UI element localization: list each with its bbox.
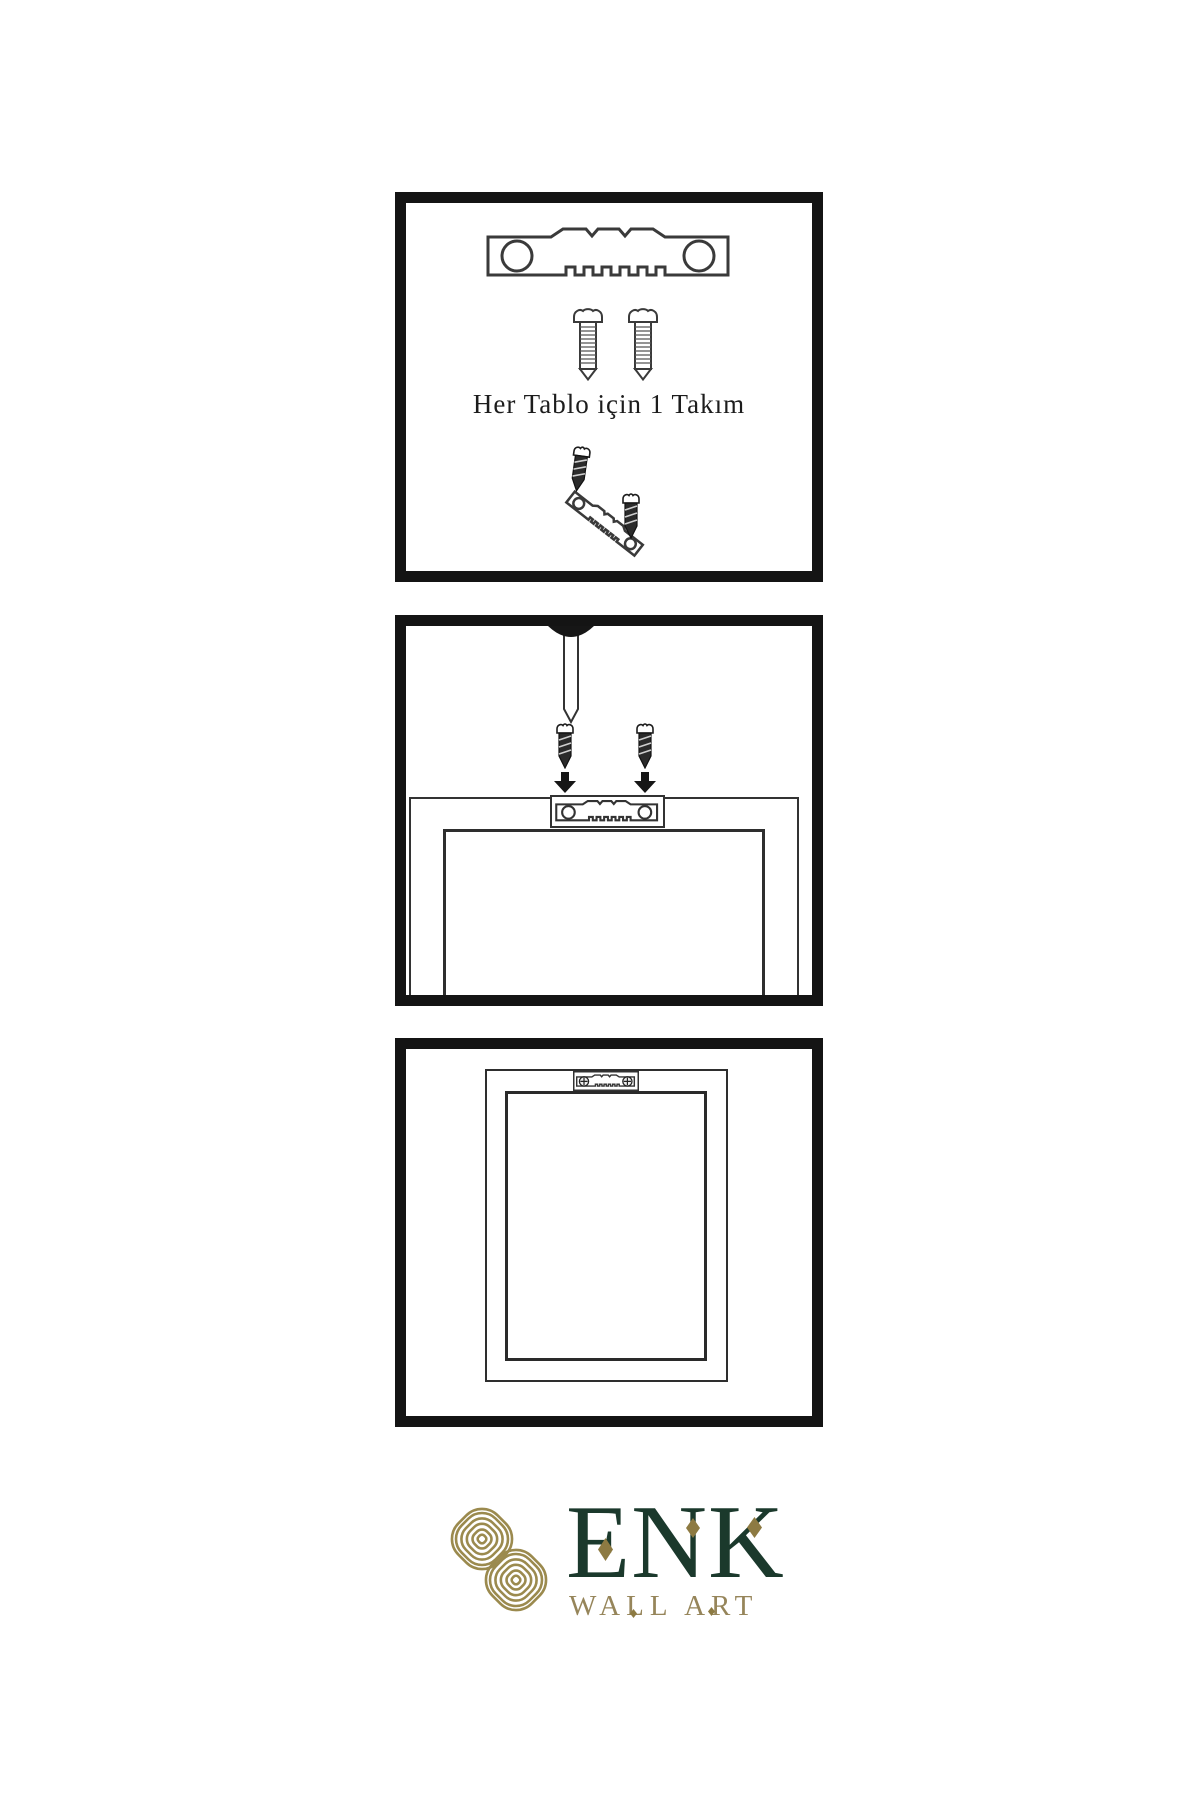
installed-hanger-icon: [573, 1071, 639, 1091]
dark-screw-icon: [554, 723, 576, 769]
brand-logo: ENK WALL ART: [420, 1485, 820, 1645]
knot-logo-icon: [437, 1492, 562, 1627]
frame-back-inner: [505, 1091, 707, 1361]
frame-back-inner: [443, 829, 765, 999]
brand-name: ENK: [566, 1495, 785, 1590]
panel-hardware-kit: Her Tablo için 1 Takım: [395, 192, 823, 582]
down-arrow-icon: [554, 772, 576, 794]
down-arrow-icon: [634, 772, 656, 794]
kit-caption: Her Tablo için 1 Takım: [406, 389, 812, 420]
dark-screw-icon: [634, 723, 656, 769]
sawtooth-hanger-icon: [485, 223, 731, 281]
phillips-screw-icon: [623, 1077, 632, 1086]
instruction-sheet: Her Tablo için 1 Takım: [0, 0, 1200, 1800]
screw-icon: [571, 307, 605, 381]
nail-icon: [545, 625, 597, 725]
screw-icon: [626, 307, 660, 381]
phillips-screw-icon: [579, 1077, 588, 1086]
panel-hung-frame: [395, 1038, 823, 1427]
panel-wall-mounting: [395, 615, 823, 1006]
hanger-assembly-icon: [535, 441, 675, 567]
brand-subtitle: WALL ART: [569, 1590, 758, 1623]
mounted-hanger-icon: [550, 795, 665, 828]
